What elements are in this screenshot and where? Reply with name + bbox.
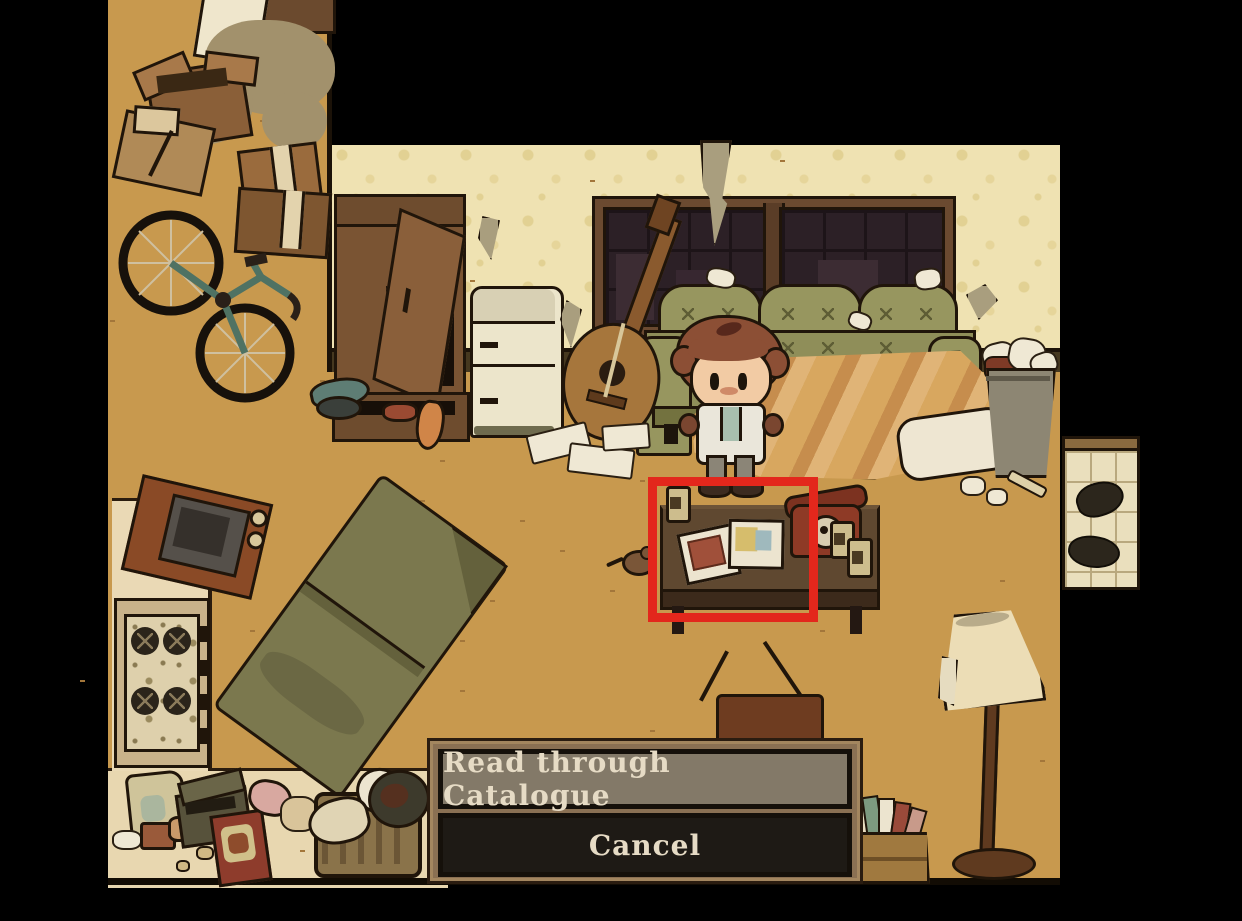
highlight-box-catalogue[interactable]	[648, 477, 818, 622]
trash-bucket	[986, 368, 1056, 478]
couch-tuft	[822, 342, 834, 354]
couch-tuft	[782, 308, 794, 320]
couch-tuft	[880, 308, 892, 320]
entry-mat	[1062, 448, 1140, 590]
floor-stain-3	[262, 92, 327, 150]
floor-scrap	[960, 476, 986, 496]
trash-bucket-rim	[986, 376, 1050, 381]
fridge-handle-bottom	[480, 398, 498, 404]
paper-bag-print	[140, 794, 167, 822]
character-eye-right	[738, 373, 747, 390]
dialog-option-cancel[interactable]: Cancel	[438, 813, 852, 877]
cereal-box	[209, 809, 272, 888]
lamp-pole	[979, 694, 1000, 866]
cereal-box-label	[220, 823, 257, 863]
crate-edge	[853, 857, 927, 861]
crumbs	[176, 860, 190, 872]
couch-tuft	[880, 342, 892, 354]
guitar	[540, 195, 690, 455]
lamp-base	[952, 848, 1036, 880]
character-blush	[720, 387, 738, 395]
clothes-red-shoe	[382, 402, 418, 422]
box-crushed-crease	[148, 130, 174, 177]
stove-burner	[163, 627, 191, 655]
frying-pan-inside	[378, 782, 410, 810]
dialog-option-read-catalogue[interactable]: Read through Catalogue	[438, 749, 852, 809]
lamp-shade-top	[955, 610, 1010, 629]
entry-area	[1062, 436, 1140, 590]
crumbs	[196, 846, 214, 860]
stove-knob	[200, 626, 210, 642]
stove-burner	[163, 687, 191, 715]
character-eye-left	[710, 373, 719, 390]
fridge-handle-top	[480, 342, 498, 348]
sleeping-bag-shadow	[252, 642, 373, 745]
stove-knob	[200, 660, 210, 676]
coffee-table-leg-right	[850, 606, 862, 634]
trash-can	[978, 338, 1058, 478]
character-shirt	[720, 407, 742, 441]
game-screen: Read through Catalogue Cancel	[0, 0, 1242, 921]
paper-sheet	[601, 422, 651, 451]
cereal-box-art	[227, 832, 250, 855]
couch-tuft	[822, 308, 834, 320]
action-dialog: Read through Catalogue Cancel	[427, 738, 863, 884]
phone-dial-center	[820, 526, 828, 534]
couch-tuft	[920, 308, 932, 320]
character-bangs	[688, 339, 768, 361]
stove-burner	[131, 687, 159, 715]
bread-slice	[112, 830, 142, 850]
beer-can	[847, 538, 873, 578]
stove-burner	[131, 627, 159, 655]
clothes-dark	[316, 396, 362, 420]
beer-can-label	[834, 533, 845, 545]
floor-lamp	[930, 610, 1050, 886]
microwave-glass	[172, 507, 230, 557]
stove-cooktop	[124, 614, 200, 752]
sleeping-bag-fold	[300, 581, 426, 677]
stove	[114, 598, 210, 768]
player-character	[676, 315, 780, 495]
character-fist-left	[678, 413, 700, 437]
stove-knob	[200, 694, 210, 710]
wardrobe-door-open-handle	[402, 288, 410, 314]
stove-knob	[200, 728, 210, 744]
beer-can-label	[852, 551, 863, 564]
floor-scrap	[986, 488, 1008, 506]
wardrobe	[334, 194, 468, 444]
bicycle	[103, 205, 328, 410]
character-fist-right	[762, 413, 784, 437]
